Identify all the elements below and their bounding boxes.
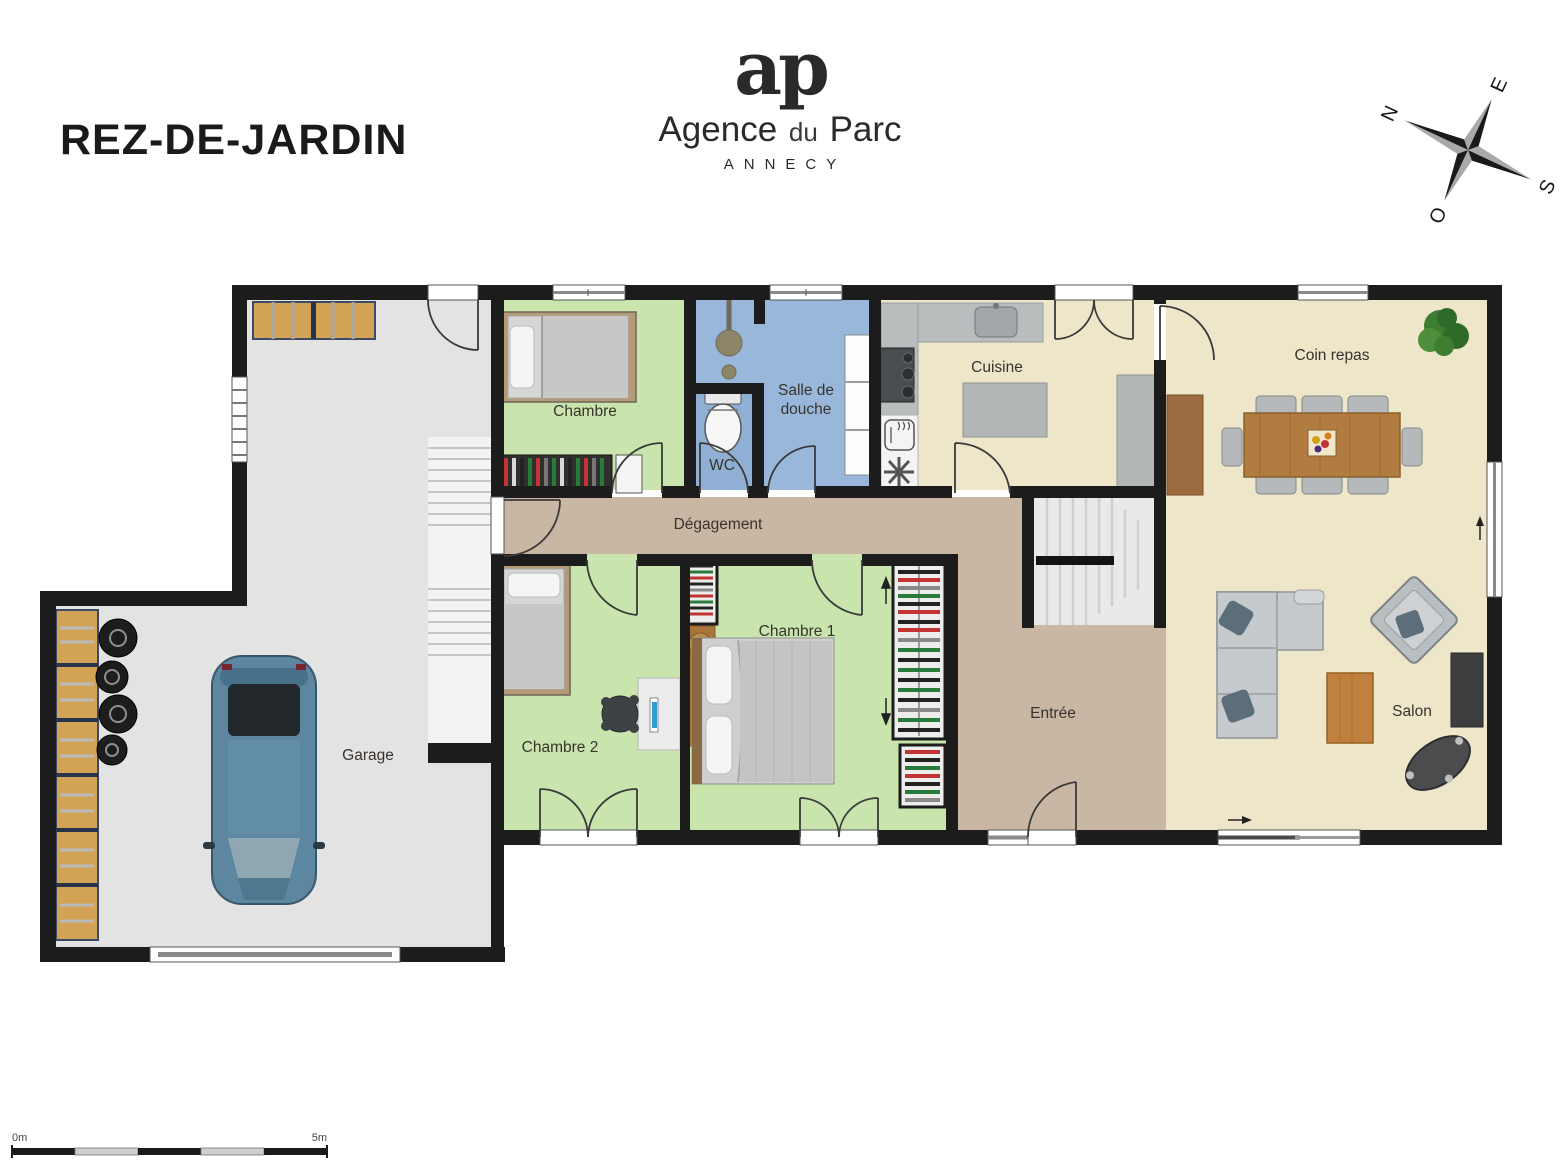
salle-de-douche-label-line2: douche	[781, 401, 832, 418]
door-sill-hall-left	[491, 497, 504, 554]
window-garage-icon	[232, 377, 247, 462]
dining-table-icon	[1244, 413, 1400, 477]
sideboard-icon	[1167, 395, 1203, 495]
salon-label: Salon	[1392, 703, 1432, 720]
salle-de-douche-label-line1: Salle de	[778, 382, 834, 399]
kitchen-cabinets-icon	[881, 415, 918, 493]
garage-label: Garage	[342, 747, 394, 764]
garage-shelf-top-icon	[253, 302, 375, 339]
scale-bar: 0m 5m	[12, 1132, 327, 1158]
chambre1-label: Chambre 1	[759, 623, 836, 640]
floorplan-drawing: N E S O	[0, 0, 1560, 1170]
window-entree-icon	[988, 830, 1028, 845]
compass-west-label: O	[1425, 204, 1452, 227]
closet-bottom-right-icon	[900, 745, 945, 807]
floorplan-page: REZ-DE-JARDIN ap Agence du Parc ANNECY N…	[0, 0, 1560, 1170]
single-bed2-icon	[498, 563, 570, 695]
fireplace-icon	[1451, 653, 1483, 727]
single-bed-icon	[500, 312, 636, 402]
cuisine-label: Cuisine	[971, 359, 1023, 376]
window-douche-icon	[770, 285, 842, 300]
desk-chair-icon	[601, 695, 639, 733]
kitchen-tall-cabinet-icon	[1117, 375, 1155, 488]
double-bed-icon	[692, 638, 834, 784]
window-coin-repas-icon	[1298, 285, 1368, 300]
entree-stairs	[1034, 498, 1154, 625]
kitchen-sink-icon	[975, 307, 1017, 337]
compass-south-label: S	[1535, 176, 1560, 197]
coin-repas-label: Coin repas	[1295, 347, 1370, 364]
desk-icon	[638, 678, 680, 750]
car-icon	[203, 656, 325, 904]
bathroom-shelf-icon	[845, 335, 873, 475]
scale-end-label: 5m	[312, 1132, 327, 1144]
entree-label: Entrée	[1030, 705, 1076, 722]
compass-rose-icon: N E S O	[1346, 38, 1560, 264]
chambre2-label: Chambre 2	[522, 739, 599, 756]
wc-label: WC	[709, 457, 735, 474]
extractor-fan-icon	[884, 457, 914, 487]
door-sill-entree	[1028, 830, 1076, 845]
door-sill-cuisine-top	[1055, 285, 1133, 300]
chambre-label: Chambre	[553, 403, 617, 420]
garage-stairs	[428, 437, 496, 763]
degagement-label: Dégagement	[674, 516, 763, 533]
toilet-icon	[705, 392, 741, 452]
scale-start-label: 0m	[12, 1132, 27, 1144]
compass-north-label: N	[1377, 102, 1403, 124]
closet-right-icon	[893, 563, 945, 739]
window-chambre-icon	[553, 285, 625, 300]
coffee-table-icon	[1327, 673, 1373, 743]
garage-door-icon	[150, 947, 400, 962]
door-sill-garage-top	[428, 285, 478, 300]
garage-shelf-left-icon	[56, 610, 98, 940]
kitchen-island-icon	[963, 383, 1047, 437]
compass-east-label: E	[1487, 74, 1513, 95]
